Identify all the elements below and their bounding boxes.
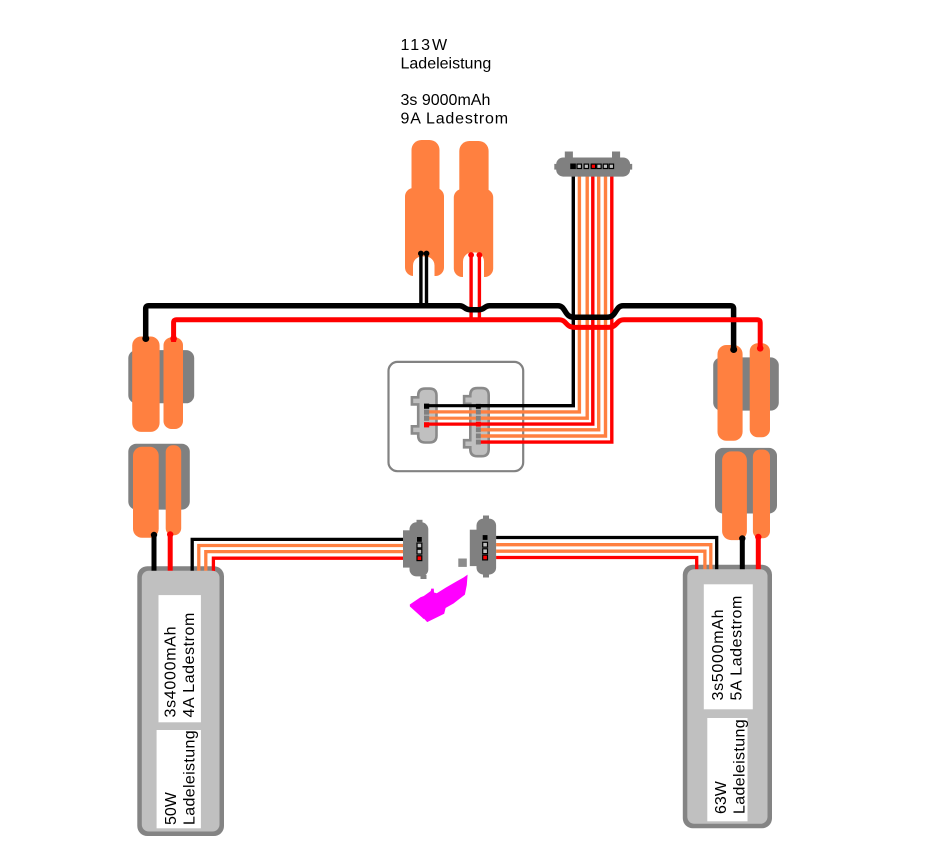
svg-text:63W: 63W xyxy=(713,780,730,814)
svg-text:3s5000mAh: 3s5000mAh xyxy=(710,609,727,701)
svg-text:Ladeleistung: Ladeleistung xyxy=(731,719,748,814)
svg-text:5A Ladestrom: 5A Ladestrom xyxy=(728,595,745,700)
svg-text:50W: 50W xyxy=(163,791,180,825)
svg-text:Ladeleistung: Ladeleistung xyxy=(401,55,492,72)
svg-text:113W: 113W xyxy=(401,37,450,54)
svg-text:Ladeleistung: Ladeleistung xyxy=(181,730,198,825)
svg-text:3s4000mAh: 3s4000mAh xyxy=(163,626,180,718)
svg-text:3s 9000mAh: 3s 9000mAh xyxy=(401,92,491,109)
svg-text:4A Ladestrom: 4A Ladestrom xyxy=(181,612,198,717)
svg-text:9A Ladestrom: 9A Ladestrom xyxy=(401,111,509,128)
